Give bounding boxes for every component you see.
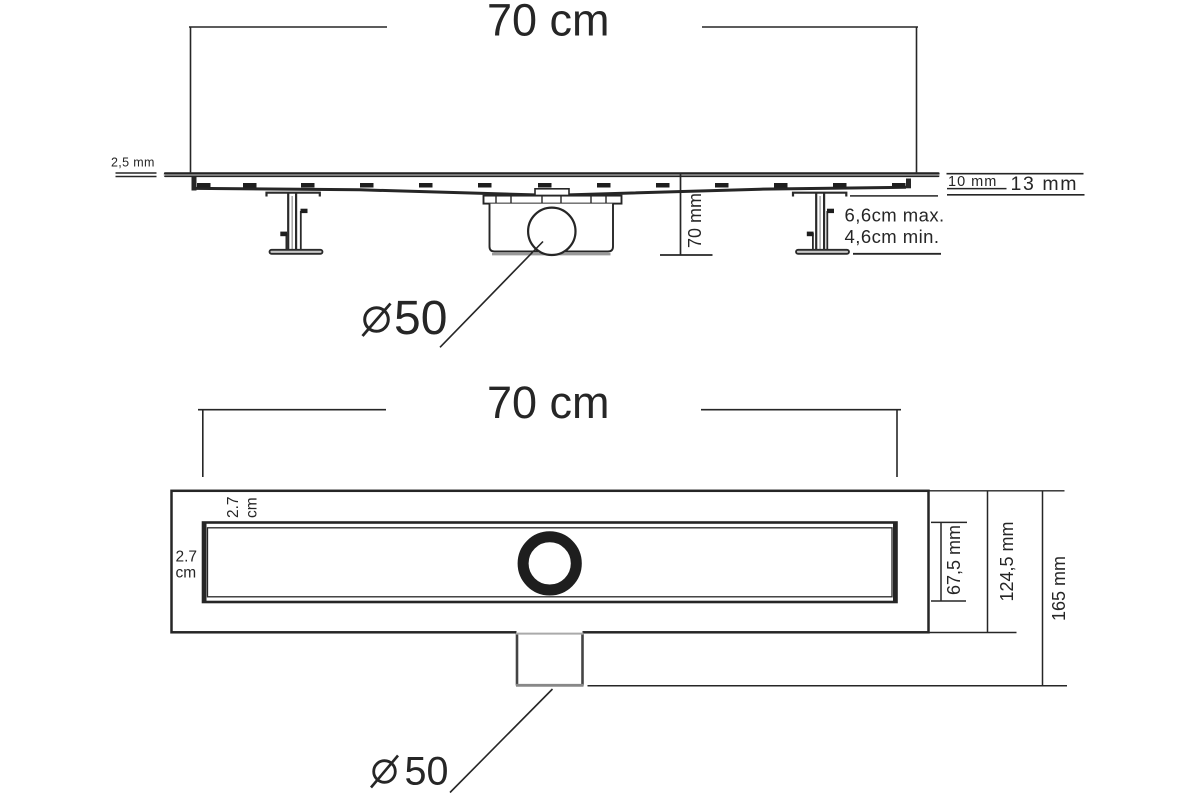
svg-text:2.7: 2.7 bbox=[225, 496, 242, 518]
svg-text:2,5 mm: 2,5 mm bbox=[111, 156, 155, 170]
svg-text:67,5 mm: 67,5 mm bbox=[944, 525, 964, 595]
svg-text:124,5 mm: 124,5 mm bbox=[997, 521, 1017, 601]
svg-text:2.7: 2.7 bbox=[176, 549, 198, 566]
svg-text:10 mm: 10 mm bbox=[948, 174, 997, 190]
svg-text:13 mm: 13 mm bbox=[1011, 173, 1079, 195]
svg-text:50: 50 bbox=[394, 292, 447, 345]
svg-text:165 mm: 165 mm bbox=[1049, 556, 1069, 621]
svg-text:cm: cm bbox=[176, 565, 197, 582]
svg-text:4,6cm min.: 4,6cm min. bbox=[845, 226, 940, 247]
svg-text:70 cm: 70 cm bbox=[487, 0, 610, 46]
svg-text:70 mm: 70 mm bbox=[685, 193, 705, 248]
svg-text:6,6cm max.: 6,6cm max. bbox=[845, 204, 945, 225]
svg-text:cm: cm bbox=[244, 497, 261, 518]
svg-text:70 cm: 70 cm bbox=[487, 377, 610, 428]
svg-text:50: 50 bbox=[405, 750, 449, 794]
